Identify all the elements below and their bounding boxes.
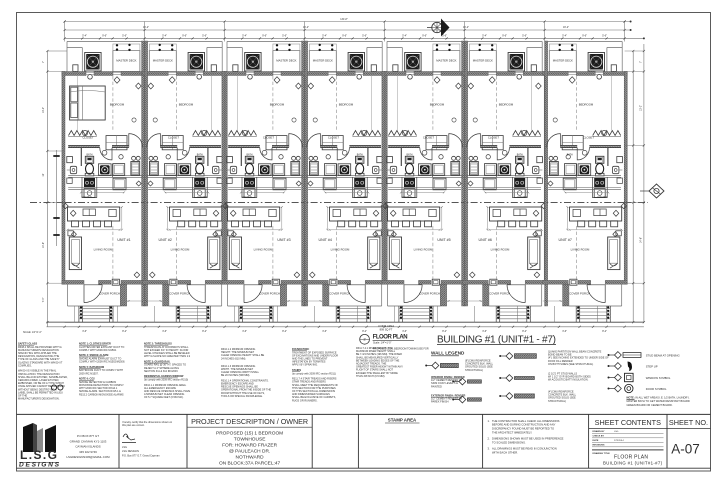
- svg-text:FLOOR PLAN: FLOOR PLAN: [373, 335, 408, 341]
- svg-text:9'-6": 9'-6": [102, 35, 107, 38]
- svg-text:(to comply with 2009 IRC secti: (to comply with 2009 IRC section R311): [292, 372, 336, 375]
- svg-text:MANUFACTURER'S DESIGNATION.: MANUFACTURER'S DESIGNATION.: [18, 398, 60, 401]
- svg-text:WITH A SLOPE NO GREATER THAN 1: WITH A SLOPE NO GREATER THAN 1:2: [144, 355, 191, 358]
- svg-text:BEDROOM: BEDROOM: [270, 102, 285, 106]
- svg-text:SECTION 311 & 312 IRC2009: SECTION 311 & 312 IRC2009: [144, 370, 178, 373]
- svg-text:P.O BOX 877 GT: P.O BOX 877 GT: [77, 434, 99, 438]
- svg-text:24 INCHES (610 MM).: 24 INCHES (610 MM).: [221, 357, 246, 360]
- svg-text:PAINTED: PAINTED: [431, 384, 442, 388]
- svg-text:NOTE: IN ALL WET AREAS I.E. 1: NOTE: IN ALL WET AREAS I.E. 1/2 BATH, LA…: [627, 396, 690, 400]
- svg-text:BEDROOM: BEDROOM: [499, 102, 514, 106]
- svg-text:PAREX FINISH: PAREX FINISH: [431, 400, 449, 404]
- svg-text:5'-6": 5'-6": [282, 35, 287, 38]
- svg-text:BEDROOM: BEDROOM: [579, 102, 594, 106]
- svg-text:THE CONTRACTOR SHALL CHECK ALL: THE CONTRACTOR SHALL CHECK ALL DIMENSION…: [492, 419, 560, 423]
- svg-text:R315.2 CARBON MONOXIDE ALARMS: R315.2 CARBON MONOXIDE ALARMS: [79, 393, 124, 396]
- svg-text:ALL DRAWINGS MUST BE READ IN C: ALL DRAWINGS MUST BE READ IN CONJUNCTION: [492, 447, 557, 451]
- svg-text:SHEET NO.: SHEET NO.: [669, 418, 708, 427]
- svg-text:UNIT #2: UNIT #2: [159, 238, 172, 242]
- svg-text:3'-6": 3'-6": [162, 330, 167, 333]
- svg-text:KITCHEN: KITCHEN: [358, 197, 368, 199]
- svg-text:DRAWN BY: DRAWN BY: [593, 430, 605, 433]
- svg-text:CHECK BY: CHECK BY: [593, 436, 605, 438]
- svg-text:27/9/2014: 27/9/2014: [614, 440, 625, 442]
- svg-text:BEDROOM: BEDROOM: [339, 102, 354, 106]
- svg-text:DIMENSIONS SHOWN MUST BE USED: DIMENSIONS SHOWN MUST BE USED IN PREFERE…: [492, 437, 564, 441]
- svg-text:KITCHEN: KITCHEN: [242, 197, 252, 199]
- svg-text:KITCHEN: KITCHEN: [82, 197, 92, 199]
- svg-text:LIVING ROOM: LIVING ROOM: [331, 248, 350, 252]
- svg-text:CLOSET: CLOSET: [82, 136, 93, 140]
- svg-text:BUILDING #1 (UNIT#1-#7): BUILDING #1 (UNIT#1-#7): [603, 461, 663, 466]
- svg-text:9'-6": 9'-6": [502, 35, 507, 38]
- svg-text:10': 10': [42, 173, 45, 177]
- svg-text:COMPLIES,: COMPLIES,: [18, 364, 32, 367]
- svg-text:19'-2": 19'-2": [143, 26, 149, 29]
- svg-text:LIVING ROOM: LIVING ROOM: [491, 248, 510, 252]
- svg-text:LIVING ROOM: LIVING ROOM: [94, 248, 113, 252]
- svg-text:DRAWING TITLE: DRAWING TITLE: [593, 452, 611, 455]
- svg-text:CAYMAN ISLANDS: CAYMAN ISLANDS: [75, 445, 100, 449]
- svg-text:LSG DESIGNS: LSG DESIGNS: [122, 450, 139, 453]
- svg-text:19'-2": 19'-2": [303, 26, 309, 29]
- svg-text:STRUCTURAL): STRUCTURAL): [548, 399, 566, 403]
- svg-text:GRAND CAYMAN KY1-1103: GRAND CAYMAN KY1-1103: [70, 439, 107, 443]
- svg-text:LSG: LSG: [122, 446, 127, 449]
- svg-text:8'-2": 8'-2": [522, 330, 527, 333]
- svg-text:5'-6": 5'-6": [522, 35, 527, 38]
- svg-text:P.O. Box 877 G.T. Grand Caym: P.O. Box 877 G.T. Grand Cayman: [122, 455, 160, 458]
- svg-text:STAMP AREA: STAMP AREA: [388, 418, 417, 423]
- svg-text:BATH: BATH: [197, 153, 203, 156]
- svg-text:134'-8": 134'-8": [340, 18, 348, 21]
- svg-text:GREEN BOARD OR CEMENT BOARD.: GREEN BOARD OR CEMENT BOARD.: [627, 403, 673, 407]
- svg-text:RUGS OR RUNNERS.: RUGS OR RUNNERS.: [292, 399, 318, 402]
- svg-text:3'-6": 3'-6": [242, 330, 247, 333]
- svg-text:BATH: BATH: [567, 153, 573, 156]
- svg-text:STUD BEAM AT OPENING: STUD BEAM AT OPENING: [646, 354, 680, 358]
- svg-text:8'-2": 8'-2": [122, 330, 127, 333]
- svg-text:9'-6": 9'-6": [182, 35, 187, 38]
- svg-text:7'-4": 7'-4": [42, 297, 45, 302]
- svg-text:5'-6": 5'-6": [122, 35, 127, 38]
- svg-text:KITCHEN: KITCHEN: [518, 197, 528, 199]
- svg-text:FOR: HOWARD FRAZER: FOR: HOWARD FRAZER: [222, 443, 278, 449]
- svg-text:LIVING ROOM: LIVING ROOM: [571, 248, 590, 252]
- svg-text:L.S.G: L.S.G: [20, 448, 57, 462]
- svg-text:BATH: BATH: [517, 153, 523, 156]
- svg-text:MASTER BATH TO GET WATER RESIS: MASTER BATH TO GET WATER RESISTANT BOARD: [627, 399, 690, 403]
- svg-text:this plan are correct.: this plan are correct.: [122, 424, 145, 427]
- svg-text:WITH EACH OTHER.: WITH EACH OTHER.: [492, 451, 518, 455]
- svg-text:A-07: A-07: [671, 442, 700, 457]
- svg-text:WALL LEGEND: WALL LEGEND: [431, 351, 465, 356]
- svg-text:DOOR SYMBOL: DOOR SYMBOL: [646, 387, 667, 391]
- svg-text:KITCHEN: KITCHEN: [598, 197, 608, 199]
- svg-text:14'-6": 14'-6": [42, 242, 45, 248]
- svg-text:COVER PORCH: COVER PORCH: [489, 292, 510, 296]
- svg-text:UNIT #6: UNIT #6: [479, 238, 492, 242]
- svg-text:COMPLY WITH 2009 IRC M1502/M15: COMPLY WITH 2009 IRC M1502/M1508.: [79, 361, 125, 364]
- svg-text:5'-4": 5'-4": [322, 35, 327, 38]
- svg-text:14'-6": 14'-6": [640, 237, 643, 243]
- svg-text:5'-6": 5'-6": [202, 35, 207, 38]
- svg-text:5'-6": 5'-6": [442, 35, 447, 38]
- svg-text:COVER PORCH: COVER PORCH: [329, 292, 350, 296]
- svg-text:THAN 3/8 INCH (9.5 MM).: THAN 3/8 INCH (9.5 MM).: [356, 375, 385, 378]
- svg-text:MASTER DECK: MASTER DECK: [276, 59, 296, 63]
- svg-text:STRUCTURAL): STRUCTURAL): [465, 368, 483, 372]
- svg-text:19'-2": 19'-2": [563, 26, 569, 29]
- svg-text:5'-4": 5'-4": [482, 35, 487, 38]
- svg-text:(to comply with 2009 IRC secti: (to comply with 2009 IRC section R310): [144, 379, 188, 382]
- svg-text:BATH: BATH: [247, 153, 253, 156]
- svg-text:3'-6": 3'-6": [322, 330, 327, 333]
- svg-text:CLOSET: CLOSET: [328, 136, 339, 140]
- svg-text:BEDROOM: BEDROOM: [179, 102, 194, 106]
- svg-text:SCALE: 1/4"=1'-0": SCALE: 1/4"=1'-0": [23, 331, 42, 334]
- svg-text:BEDROOM: BEDROOM: [110, 102, 125, 106]
- svg-text:PROPOSED (15) 1 BEDROOM: PROPOSED (15) 1 BEDROOM: [216, 430, 283, 436]
- svg-text:@ PAULEACH DR.: @ PAULEACH DR.: [229, 449, 270, 455]
- svg-text:NOTHWARD: NOTHWARD: [236, 455, 265, 461]
- svg-text:MASTER DECK: MASTER DECK: [116, 59, 136, 63]
- svg-text:BEFORE AND DURING CONSTRUCTION: BEFORE AND DURING CONSTRUCTION AND ANY: [492, 423, 556, 427]
- svg-text:2.: 2.: [488, 437, 490, 441]
- svg-text:3'-6": 3'-6": [402, 330, 407, 333]
- svg-text:MASTER DECK: MASTER DECK: [473, 59, 493, 63]
- svg-text:OF 5.7 SQUARE FEET (0.530 M2).: OF 5.7 SQUARE FEET (0.530 M2).: [144, 396, 184, 399]
- svg-text:CLOSET: CLOSET: [583, 136, 594, 140]
- svg-text:KITCHEN: KITCHEN: [198, 197, 208, 199]
- svg-text:1.: 1.: [488, 419, 490, 423]
- svg-text:345 322 9746: 345 322 9746: [79, 450, 97, 454]
- svg-text:13'-2": 13'-2": [42, 107, 45, 113]
- svg-text:COVER PORCH: COVER PORCH: [99, 292, 120, 296]
- svg-text:CLOSET: CLOSET: [423, 136, 434, 140]
- svg-text:899 SQ FT: 899 SQ FT: [380, 327, 393, 331]
- svg-text:LSGDESIGNS345@GMAIL.COM: LSGDESIGNS345@GMAIL.COM: [66, 455, 110, 459]
- svg-text:CLOSET: CLOSET: [263, 136, 274, 140]
- svg-text:Scale: 1/4"=1'-0": Scale: 1/4"=1'-0": [373, 342, 392, 345]
- svg-text:9'-6": 9'-6": [342, 35, 347, 38]
- svg-text:UNIT #7: UNIT #7: [559, 238, 572, 242]
- svg-text:3'-6": 3'-6": [82, 330, 87, 333]
- svg-text:LIVING ROOM: LIVING ROOM: [254, 248, 273, 252]
- svg-text:MASTER DECK: MASTER DECK: [553, 59, 573, 63]
- svg-text:TOWNHOUSE: TOWNHOUSE: [234, 436, 266, 442]
- svg-text:8'-2": 8'-2": [202, 330, 207, 333]
- svg-text:COVER PORCH: COVER PORCH: [569, 292, 590, 296]
- svg-text:5'-4": 5'-4": [82, 35, 87, 38]
- svg-text:PROJECT DESCRIPTION / OWNER: PROJECT DESCRIPTION / OWNER: [191, 417, 308, 426]
- svg-text:ON BLOCK:37A PARCEL:47: ON BLOCK:37A PARCEL:47: [219, 461, 281, 467]
- svg-text:BATH: BATH: [357, 153, 363, 156]
- svg-text:8'-2": 8'-2": [282, 330, 287, 333]
- svg-text:9'-6": 9'-6": [582, 35, 587, 38]
- svg-text:BUILDING #1 (UNIT#1 - #7): BUILDING #1 (UNIT#1 - #7): [437, 335, 556, 346]
- svg-text:THE ARCHITECT IMMEDIATELY.: THE ARCHITECT IMMEDIATELY.: [492, 431, 533, 435]
- svg-text:9'-6": 9'-6": [262, 35, 267, 38]
- svg-text:8'-2": 8'-2": [602, 330, 607, 333]
- svg-text:REVISIONS: REVISIONS: [593, 445, 605, 447]
- svg-text:KITCHEN: KITCHEN: [402, 197, 412, 199]
- svg-text:5'-6": 5'-6": [602, 35, 607, 38]
- svg-text:STEP UP: STEP UP: [646, 364, 658, 368]
- svg-text:WINDOW SYMBOL: WINDOW SYMBOL: [646, 376, 671, 380]
- svg-text:MASTER DECK: MASTER DECK: [313, 59, 333, 63]
- svg-text:COVER PORCH: COVER PORCH: [259, 292, 280, 296]
- svg-text:UNIT #1: UNIT #1: [117, 238, 130, 242]
- svg-text:5'-4": 5'-4": [562, 35, 567, 38]
- svg-text:SHEET CONTENTS: SHEET CONTENTS: [595, 418, 661, 427]
- svg-text:COVER PORCH: COVER PORCH: [169, 292, 190, 296]
- svg-text:3'-6": 3'-6": [482, 330, 487, 333]
- svg-text:COMPLY WITH 2009 IRC M1502.: COMPLY WITH 2009 IRC M1502.: [79, 349, 117, 352]
- svg-text:ON BOTH SIDES (SEE STRUCTURAL): ON BOTH SIDES (SEE STRUCTURAL): [548, 362, 593, 366]
- svg-text:LIVING ROOM: LIVING ROOM: [171, 248, 190, 252]
- svg-text:LSG: LSG: [614, 431, 619, 433]
- svg-text:19'-2": 19'-2": [463, 26, 469, 29]
- svg-text:MASTER DECK: MASTER DECK: [153, 59, 173, 63]
- svg-text:2: 2: [364, 338, 366, 342]
- svg-text:UNIT #3: UNIT #3: [277, 238, 290, 242]
- svg-text:2009 IRC M1507.: 2009 IRC M1507.: [79, 372, 99, 375]
- svg-text:UNIT #5: UNIT #5: [437, 238, 450, 242]
- svg-text:CLOSET: CLOSET: [488, 136, 499, 140]
- svg-text:5'-4": 5'-4": [402, 35, 407, 38]
- svg-text:DISCREPANCY FOUND MUST BE REPO: DISCREPANCY FOUND MUST BE REPORTED TO: [492, 427, 554, 431]
- svg-text:BATH: BATH: [407, 153, 413, 156]
- svg-text:TO SCALED DIMENSIONS.: TO SCALED DIMENSIONS.: [492, 441, 526, 445]
- svg-text:8'-2": 8'-2": [362, 330, 367, 333]
- svg-text:BATH: BATH: [87, 153, 93, 156]
- svg-text:TOOLS OR SPECIAL KNOWLEDGE.: TOOLS OR SPECIAL KNOWLEDGE.: [221, 395, 263, 398]
- svg-text:LIVING AREA: LIVING AREA: [378, 324, 394, 328]
- svg-text:W/ ACOUSTIC BATT INSULATION.: W/ ACOUSTIC BATT INSULATION.: [548, 378, 589, 382]
- svg-text:5'-4": 5'-4": [162, 35, 167, 38]
- svg-text:8'-2": 8'-2": [442, 330, 447, 333]
- svg-text:LIVING ROOM: LIVING ROOM: [414, 248, 433, 252]
- svg-text:BE 20 INCHES (508 MM).: BE 20 INCHES (508 MM).: [221, 374, 250, 377]
- svg-text:3'-6": 3'-6": [562, 330, 567, 333]
- svg-text:3.: 3.: [488, 447, 490, 451]
- svg-text:13'-2": 13'-2": [640, 105, 643, 111]
- svg-text:UNIT #4: UNIT #4: [319, 238, 332, 242]
- svg-text:BEDROOM: BEDROOM: [430, 102, 445, 106]
- svg-text:CLOSET: CLOSET: [168, 136, 179, 140]
- svg-text:5'-4": 5'-4": [242, 35, 247, 38]
- svg-text:MASTER DECK: MASTER DECK: [436, 59, 456, 63]
- svg-text:COVER PORCH: COVER PORCH: [419, 292, 440, 296]
- svg-text:DATE: DATE: [593, 439, 599, 442]
- svg-text:5'-6": 5'-6": [362, 35, 367, 38]
- svg-text:9'-6": 9'-6": [422, 35, 427, 38]
- svg-text:APPLY BY SPRAYING.: APPLY BY SPRAYING.: [292, 364, 318, 367]
